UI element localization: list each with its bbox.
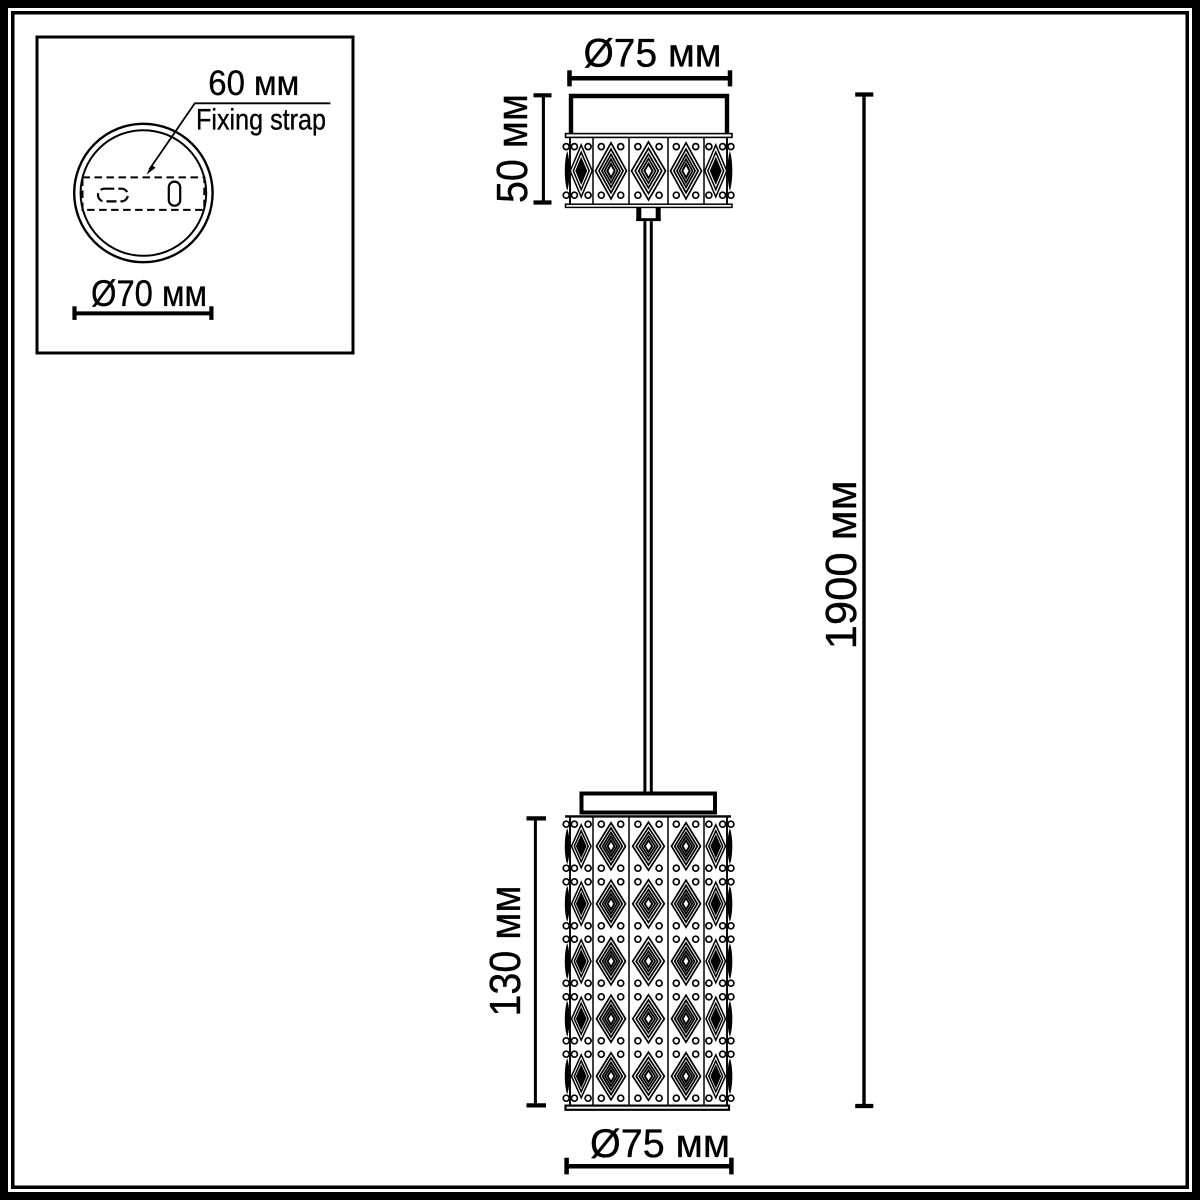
svg-text:Fixing strap: Fixing strap (196, 103, 326, 136)
svg-text:Ø70 мм: Ø70 мм (91, 273, 207, 314)
svg-text:Ø75 мм: Ø75 мм (584, 32, 722, 76)
svg-text:1900 мм: 1900 мм (817, 480, 866, 649)
svg-text:Ø75 мм: Ø75 мм (590, 1122, 730, 1166)
svg-text:60 мм: 60 мм (208, 64, 299, 103)
svg-text:50 мм: 50 мм (488, 94, 537, 203)
svg-text:130 мм: 130 мм (481, 886, 530, 1017)
